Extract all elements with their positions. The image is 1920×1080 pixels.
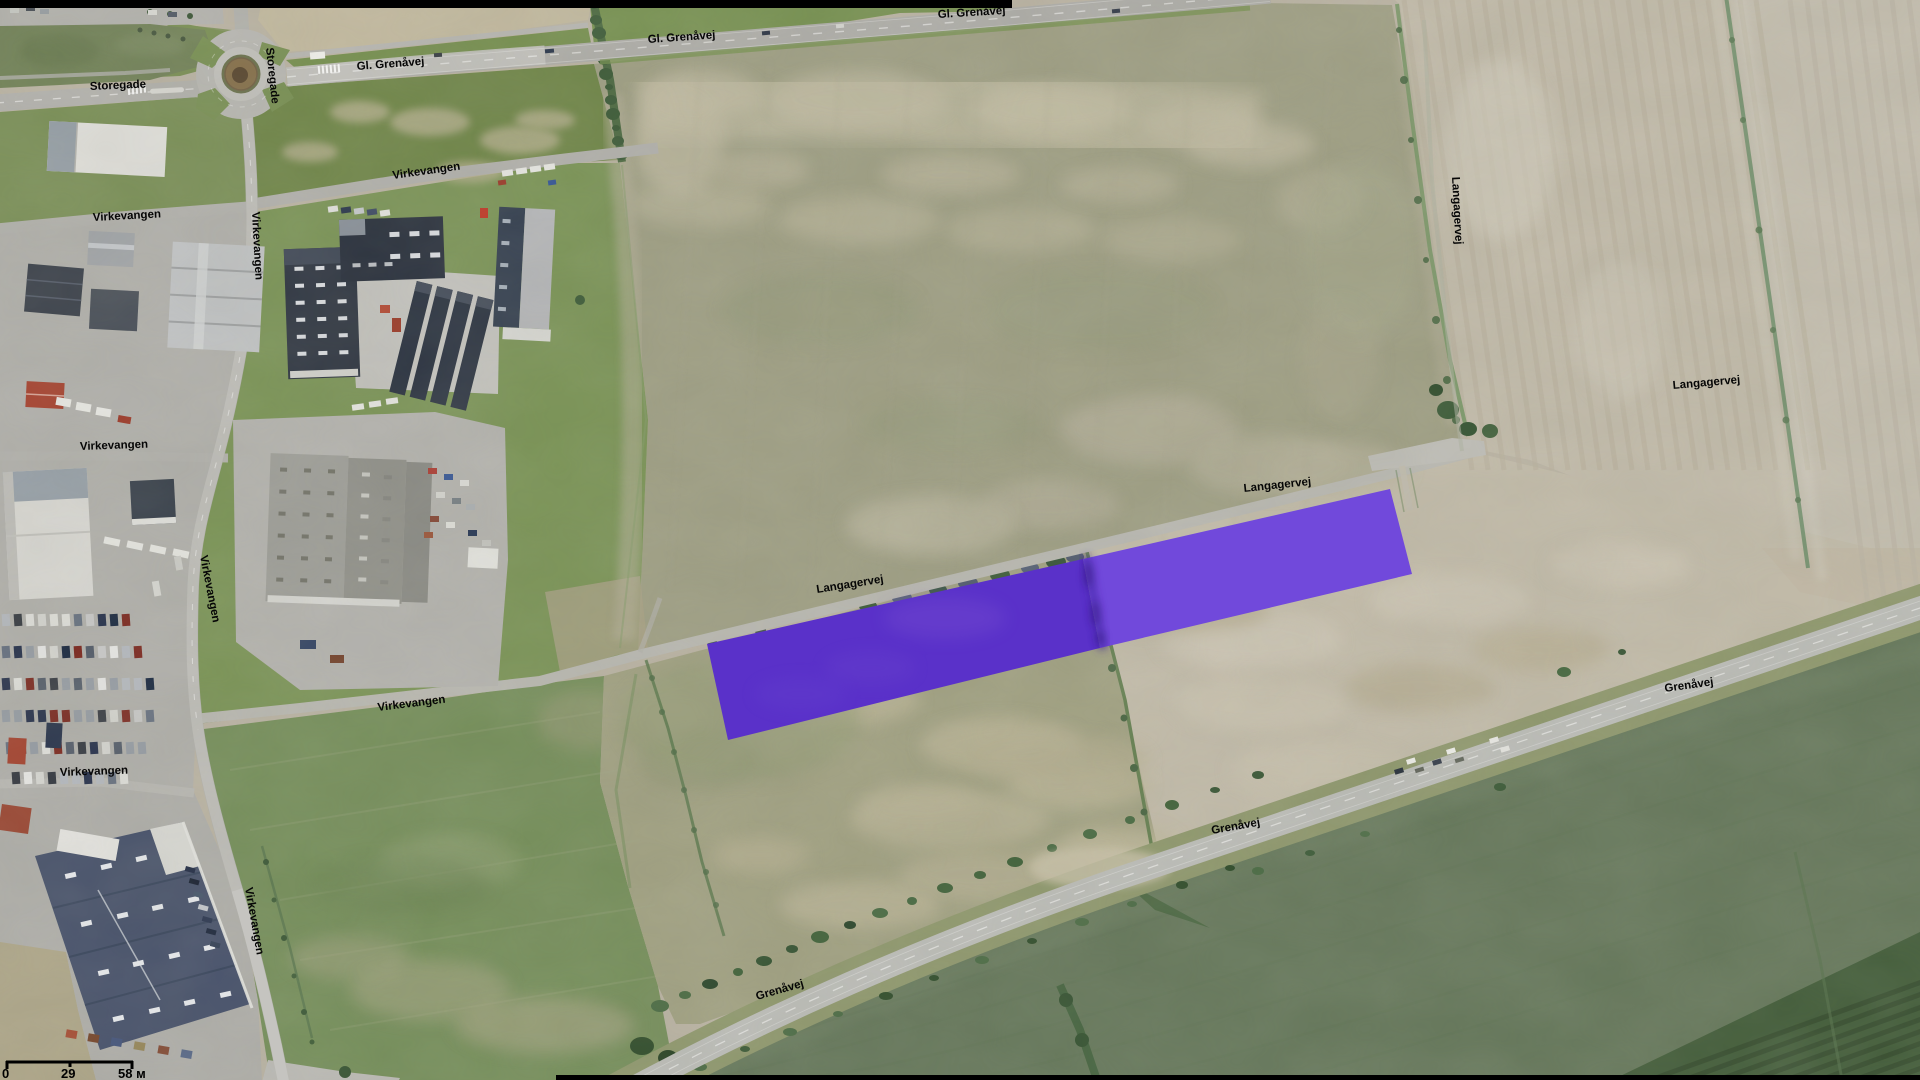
svg-text:29: 29 [61,1066,75,1080]
svg-text:Virkevangen: Virkevangen [60,765,129,779]
svg-text:0: 0 [2,1066,9,1080]
svg-text:Virkevangen: Virkevangen [80,439,149,453]
svg-text:58 м: 58 м [118,1066,146,1080]
svg-text:Storegade: Storegade [90,79,147,93]
